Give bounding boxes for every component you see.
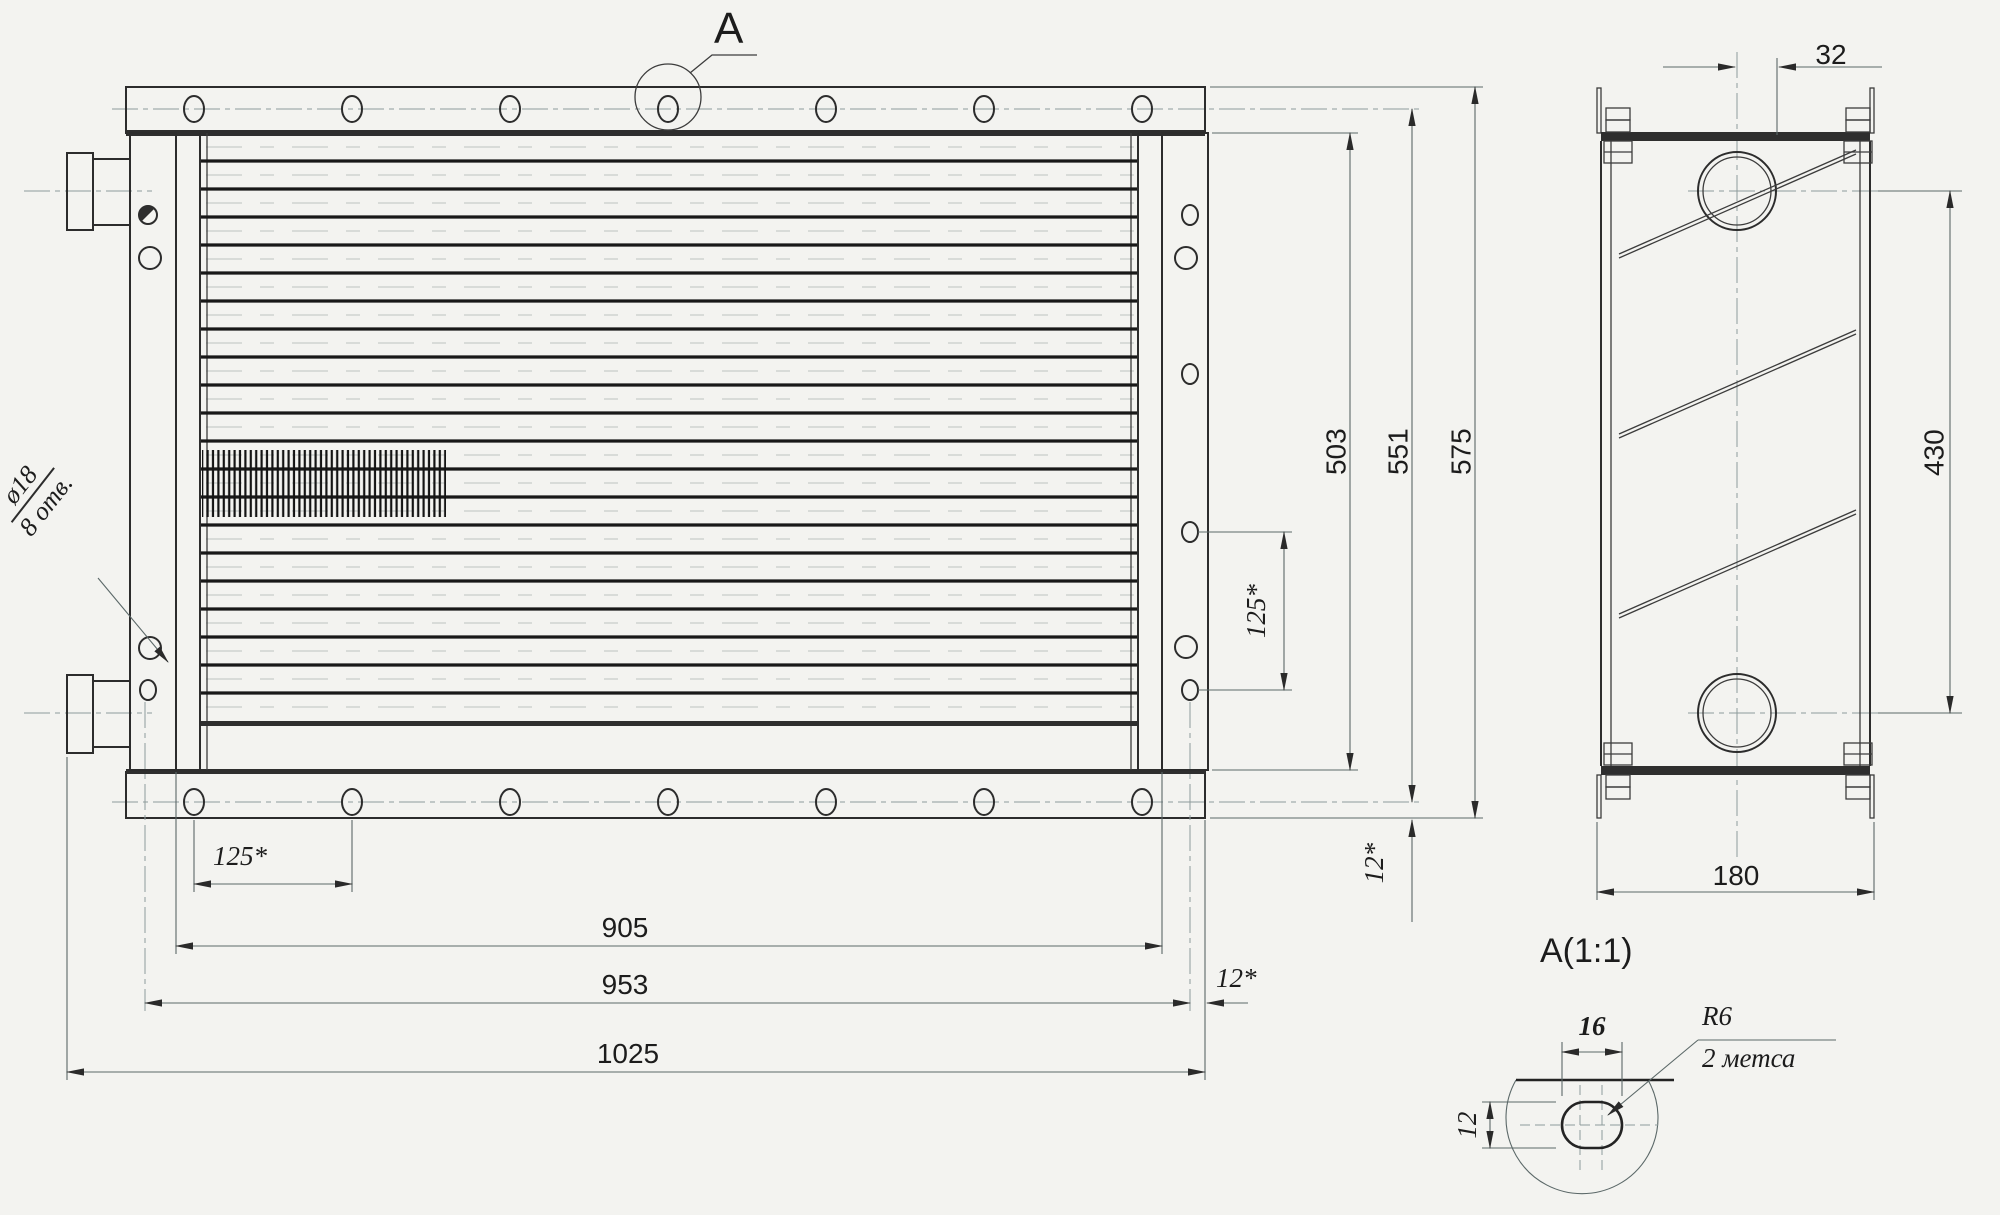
core-bottom-edge — [201, 721, 1138, 726]
top-pipe-stub — [93, 159, 130, 225]
dim-12-right-label: 12* — [1360, 813, 1388, 913]
top-flange — [126, 87, 1205, 133]
dim-16-label: 16 — [1562, 1012, 1622, 1040]
bottom-pipe-cap — [67, 675, 93, 753]
dim-32-label: 32 — [1801, 40, 1861, 69]
top-left-flange-lip — [1597, 88, 1601, 133]
left-side-plate — [130, 133, 176, 770]
dim-575-label: 575 — [1446, 402, 1475, 502]
left-plate-circle-hole-1 — [139, 247, 161, 269]
right-plate-oval-hole-2 — [1182, 364, 1198, 384]
right-side-plate — [1162, 133, 1208, 770]
bottom-flange-edge — [126, 769, 1205, 774]
detail-boundary-circle — [1506, 1080, 1658, 1194]
section-a-label: A — [714, 6, 743, 52]
dim-953-label: 953 — [575, 970, 675, 999]
dim-905-label: 905 — [575, 913, 675, 942]
drawing-canvas — [0, 0, 2000, 1215]
places-label: 2 метса — [1702, 1044, 1795, 1072]
spiral-fin-coil — [202, 450, 446, 517]
dim-12-slot-label: 12 — [1453, 1095, 1481, 1155]
dim-12-bottom-label: 12* — [1216, 964, 1257, 992]
right-plate-oval-hole-3 — [1182, 522, 1198, 542]
dim-125-right-label: 125* — [1242, 561, 1270, 661]
section-a-leader — [690, 55, 757, 73]
bottom-pipe-stub — [93, 681, 130, 747]
top-flange-edge — [126, 130, 1205, 136]
right-plate-circle-hole-1 — [1175, 247, 1197, 269]
dim-430-label: 430 — [1919, 403, 1948, 503]
fin-centerlines — [206, 147, 1134, 707]
dim-551-label: 551 — [1383, 402, 1412, 502]
side-bottom-flange-bar — [1601, 766, 1870, 775]
dim-1025-label: 1025 — [568, 1039, 688, 1068]
hole-callout-leader — [98, 578, 168, 662]
right-plate-circle-hole-2 — [1175, 636, 1197, 658]
r6-label: R6 — [1702, 1002, 1732, 1030]
side-top-flange-bar — [1601, 132, 1870, 141]
flange-bolts — [1604, 108, 1872, 799]
detail-title: A(1:1) — [1540, 934, 1633, 970]
left-plate-oval-hole — [140, 680, 156, 700]
right-plate-oval-hole-1 — [1182, 205, 1198, 225]
bottom-flange — [126, 772, 1205, 818]
side-view — [1597, 52, 1962, 900]
right-plate-oval-hole-4 — [1182, 680, 1198, 700]
dim-180-label: 180 — [1686, 861, 1786, 890]
technical-drawing: A ø18 8 отв. 125* 905 953 12* 1025 125* … — [0, 0, 2000, 1215]
dim-503-label: 503 — [1321, 402, 1350, 502]
front-view — [24, 55, 1420, 818]
dim-125-bottom-label: 125* — [188, 842, 292, 870]
bottom-left-flange-lip — [1597, 775, 1601, 818]
